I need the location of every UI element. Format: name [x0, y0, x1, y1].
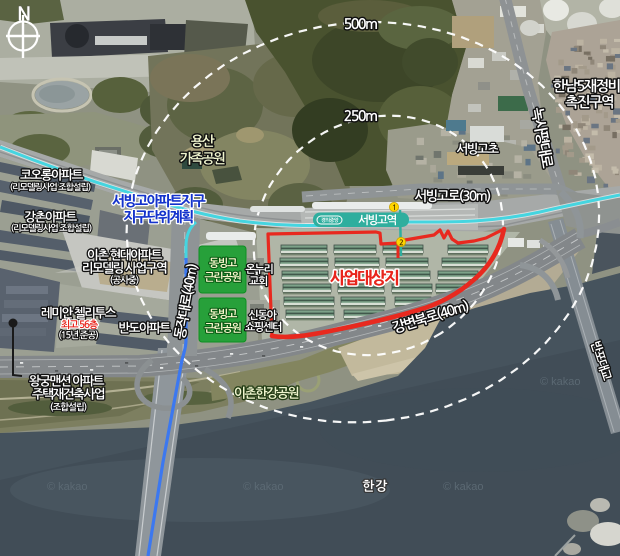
svg-text:© kakao: © kakao [47, 481, 88, 493]
svg-text:© kakao: © kakao [243, 481, 284, 493]
svg-text:© kakao: © kakao [540, 376, 581, 388]
svg-text:© kakao: © kakao [443, 481, 484, 493]
